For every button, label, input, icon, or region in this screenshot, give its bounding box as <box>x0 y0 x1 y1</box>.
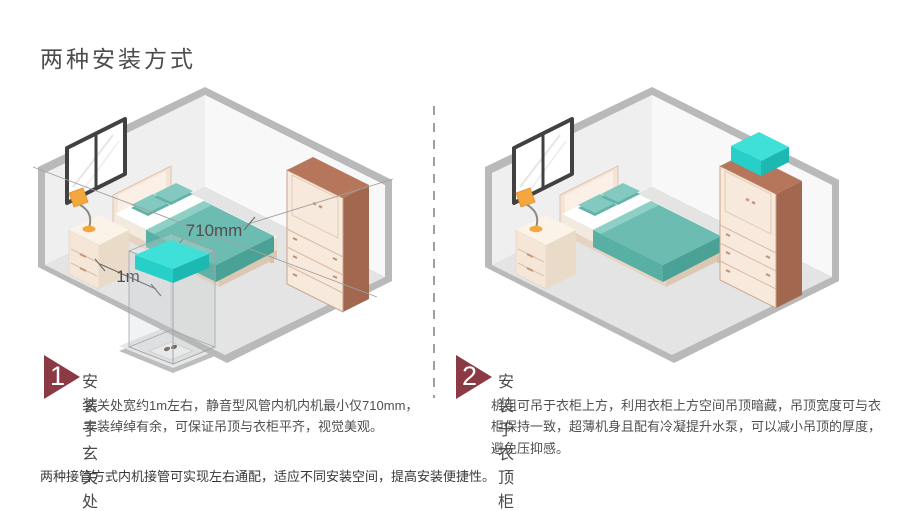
wardrobe <box>720 153 802 308</box>
room-entrance-installation-illustration: 710mm 1m <box>25 83 405 383</box>
unit-width-label: 710mm <box>186 221 243 240</box>
section-divider <box>433 106 435 398</box>
wardrobe <box>287 157 369 312</box>
page-title: 两种安装方式 <box>40 40 196 74</box>
page: 两种安装方式 <box>0 0 899 511</box>
section-2-description: 机组可吊于衣柜上方，利用衣柜上方空间吊顶暗藏，吊顶宽度可与衣柜保持一致，超薄机身… <box>491 395 893 459</box>
section-1-title: 安装于玄关处 <box>82 368 98 511</box>
room-wardrobe-installation-illustration <box>472 83 852 383</box>
section-1-description: 玄关处宽约1m左右，静音型风管内机内机最小仅710mm，安装绰绰有余，可保证吊顶… <box>84 395 424 438</box>
footer-note: 两种接管方式内机接管可实现左右通配，适应不同安装空间，提高安装便捷性。 <box>40 466 495 485</box>
nightstand <box>516 215 576 289</box>
